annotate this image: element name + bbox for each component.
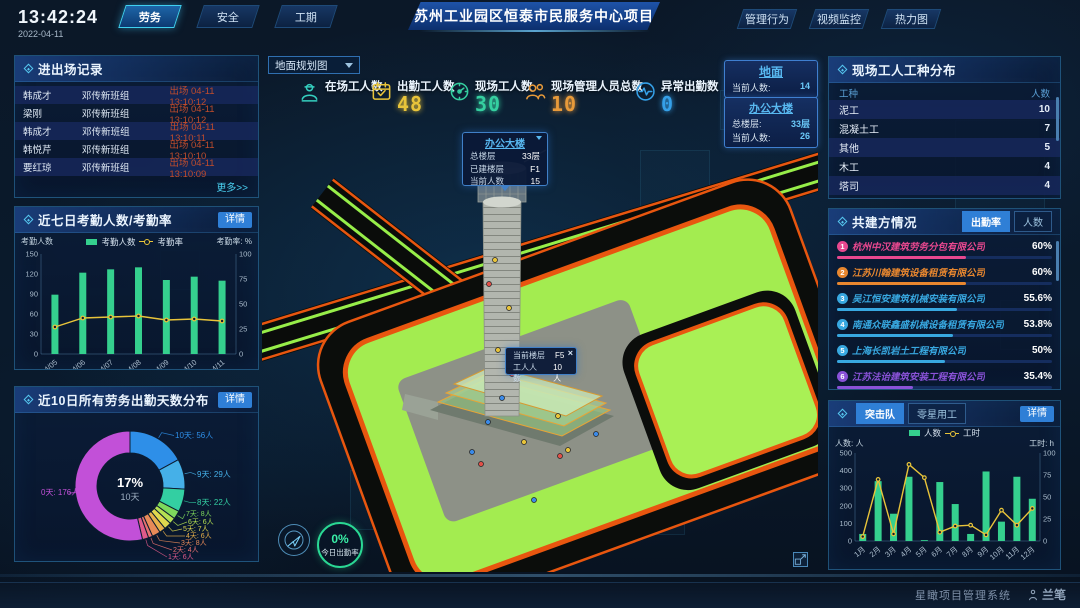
table-header-row: 工种 人数 [829, 85, 1060, 100]
nav-tab-热力图[interactable]: 热力图 [881, 9, 941, 29]
fullscreen-icon[interactable] [793, 552, 808, 567]
svg-text:04/05: 04/05 [39, 358, 59, 370]
panel-header: 近七日考勤人数/考勤率 详情 [15, 207, 258, 233]
nav-tab-劳务[interactable]: 劳务 [118, 5, 181, 28]
banner-glow [420, 30, 650, 32]
svg-text:2月: 2月 [868, 545, 883, 559]
worker-icon [298, 80, 321, 103]
chart-meta: 考勤人数 考勤人数 考勤率 考勤率: % [15, 235, 258, 248]
page-title: 苏州工业园区恒泰市民服务中心项目 [414, 6, 654, 26]
line-legend-swatch [139, 241, 153, 242]
svg-text:04/08: 04/08 [123, 358, 143, 370]
squad-panel: 突击队零星用工 详情 人数 工时 人数: 人 工时: h 01002003004… [828, 400, 1061, 570]
donut-label: 9天: 29人 [197, 469, 231, 480]
tower-card-title[interactable]: 办公大楼 [725, 100, 817, 116]
legend-label: 工时 [963, 427, 980, 439]
legend-label: 考勤人数 [101, 236, 135, 248]
clock: 13:42:24 2022-04-11 [18, 7, 98, 39]
nav-tab-安全[interactable]: 安全 [196, 5, 259, 28]
system-name: 星瞰项目管理系统 [915, 587, 1011, 603]
worker-type-row: 塔司4 [829, 176, 1060, 195]
distribution-panel: 近10日所有劳务出勤天数分布 详情 17% 10天 10天: 56人 9天: 2… [14, 386, 259, 562]
entry-exit-panel: 进出场记录 韩成才邓传新班组出场 04-11 13:10:12梁刚邓传新班组出场… [14, 55, 259, 198]
right-axis-unit: 工时: h [1029, 438, 1054, 449]
partners-tab-出勤率[interactable]: 出勤率 [962, 211, 1010, 232]
scrollbar[interactable] [1056, 97, 1059, 141]
svg-text:4月: 4月 [899, 545, 914, 559]
legend-label: 人数 [924, 427, 941, 439]
svg-text:1月: 1月 [852, 545, 867, 559]
svg-text:0: 0 [34, 350, 38, 359]
svg-text:100: 100 [1043, 449, 1056, 458]
panel-title: 近七日考勤人数/考勤率 [38, 210, 172, 229]
svg-text:04/06: 04/06 [67, 358, 87, 370]
nav-tab-管理行为[interactable]: 管理行为 [737, 9, 797, 29]
chart-legend: 人数 工时 [909, 427, 980, 439]
diamond-icon [838, 65, 848, 75]
svg-text:100: 100 [239, 250, 252, 259]
gauge-label: 今日出勤率 [321, 547, 359, 558]
panel-header: 进出场记录 [15, 56, 258, 82]
tooltip-row: 当前人数15 [463, 175, 547, 188]
tower-card-row: 当前人数:26 [725, 130, 817, 144]
svg-text:400: 400 [839, 466, 852, 475]
panel-header: 共建方情况 出勤率人数 [829, 209, 1060, 235]
svg-text:75: 75 [1043, 471, 1051, 480]
svg-text:50: 50 [239, 300, 247, 309]
floor-tooltip: × 当前楼层F5 工人人数10人 [505, 347, 577, 375]
donut-label: 1天: 6人 [168, 552, 194, 562]
svg-text:7月: 7月 [945, 545, 960, 559]
ground-card-row: 当前人数:14 [725, 80, 817, 94]
stat-calendar: 出勤工人数48 [370, 78, 455, 114]
diamond-icon [838, 409, 848, 419]
view-select-dropdown[interactable]: 地面规划图 [268, 56, 360, 74]
nav-left: 劳务安全工期 [122, 5, 334, 28]
footer: 星瞰项目管理系统 兰笔 [915, 586, 1066, 603]
donut-center-label: 10天 [120, 490, 139, 503]
people-icon [524, 80, 547, 103]
right-axis-unit: 考勤率: % [216, 236, 252, 247]
axis-units-row: 人数: 人 工时: h [829, 438, 1060, 448]
squad-tab-零星用工[interactable]: 零星用工 [908, 403, 966, 424]
tower-card: 办公大楼 总楼层:33层 当前人数:26 [724, 97, 818, 148]
line-legend-swatch [945, 433, 959, 434]
detail-button[interactable]: 详情 [1020, 406, 1054, 422]
donut-center-value: 17% [117, 475, 143, 490]
chart-legend-row: 人数 工时 [829, 428, 1060, 438]
squad-chart[interactable]: 010020030040050002550751001月2月3月4月5月6月7月… [829, 448, 1061, 568]
column-header: 工种 [839, 86, 858, 100]
meter-icon [448, 80, 471, 103]
column-header: 人数 [1031, 86, 1050, 100]
partners-list: 1杭州中汉建筑劳务分包有限公司60%2江苏川翰建筑设备租赁有限公司60%3吴江恒… [829, 235, 1060, 389]
donut-chart-area: 17% 10天 10天: 56人 9天: 29人 8天: 22人 7天: 8人 … [15, 413, 258, 561]
left-axis-unit: 考勤人数 [21, 236, 53, 247]
bar-legend-swatch [86, 239, 97, 245]
svg-text:90: 90 [30, 290, 38, 299]
svg-text:300: 300 [839, 484, 852, 493]
tooltip-row: 总楼层33层 [463, 150, 547, 163]
date: 2022-04-11 [18, 29, 98, 39]
svg-text:04/07: 04/07 [95, 358, 115, 370]
svg-text:3月: 3月 [883, 545, 898, 559]
worker-type-row: 泥工10 [829, 100, 1060, 119]
title-banner: 苏州工业园区恒泰市民服务中心项目 [408, 2, 660, 30]
nav-tab-视频监控[interactable]: 视频监控 [809, 9, 869, 29]
svg-text:04/10: 04/10 [178, 358, 198, 370]
svg-text:10月: 10月 [988, 545, 1006, 562]
svg-text:25: 25 [1043, 515, 1051, 524]
dashboard: 13:42:24 2022-04-11 劳务安全工期 苏州工业园区恒泰市民服务中… [0, 0, 1080, 608]
brand-mascot-icon [1027, 588, 1039, 602]
tower-tooltip: 办公大楼 总楼层33层 已建楼层F1 当前人数15 [462, 132, 548, 186]
close-icon[interactable]: × [568, 348, 573, 358]
partners-tabs: 出勤率人数 [958, 211, 1052, 232]
legend-label: 考勤率 [157, 236, 183, 248]
bar-legend-swatch [909, 430, 920, 436]
stat-value: 10 [551, 94, 643, 114]
nav-right: 管理行为视频监控热力图 [740, 9, 938, 29]
bottom-divider [0, 574, 1080, 577]
worker-types-list: 泥工10混凝土工7其他5木工4塔司4 [829, 100, 1060, 195]
worker-type-row: 木工4 [829, 157, 1060, 176]
chevron-down-icon [345, 63, 353, 68]
svg-text:9月: 9月 [976, 545, 991, 559]
detail-button[interactable]: 详情 [218, 212, 252, 228]
stat-people: 现场管理人员总数10 [524, 78, 643, 114]
svg-text:5月: 5月 [914, 545, 929, 559]
tower-card-row: 总楼层:33层 [725, 116, 817, 130]
entry-exit-row: 要红琼邓传新班组出场 04-11 13:10:09 [15, 158, 258, 176]
svg-text:30: 30 [30, 330, 38, 339]
today-attendance-gauge: 0% 今日出勤率 [317, 522, 363, 568]
nav-tab-工期[interactable]: 工期 [274, 5, 337, 28]
tooltip-row: 工人人数10人 [506, 362, 576, 385]
partner-item[interactable]: 3吴江恒安建筑机械安装有限公司55.6% [837, 291, 1052, 317]
tower-tooltip-title[interactable]: 办公大楼 [463, 135, 547, 150]
svg-text:100: 100 [839, 519, 852, 528]
svg-text:150: 150 [25, 250, 38, 259]
svg-text:75: 75 [239, 275, 247, 284]
brand-logo: 兰笔 [1027, 586, 1066, 603]
ground-card: 地面 当前人数:14 [724, 60, 818, 98]
diamond-icon [24, 395, 34, 405]
worker-type-row: 其他5 [829, 138, 1060, 157]
partners-panel: 共建方情况 出勤率人数 1杭州中汉建筑劳务分包有限公司60%2江苏川翰建筑设备租… [828, 208, 1061, 390]
entry-exit-list: 韩成才邓传新班组出场 04-11 13:10:12梁刚邓传新班组出场 04-11… [15, 82, 258, 176]
brand-name: 兰笔 [1042, 586, 1066, 603]
svg-text:120: 120 [25, 270, 38, 279]
stat-meter: 现场工人数30 [448, 78, 533, 114]
calendar-icon [370, 80, 393, 103]
svg-text:0: 0 [848, 537, 852, 546]
panel-header: 现场工人工种分布 [829, 57, 1060, 83]
donut-label: 0天: 176人 [41, 487, 79, 498]
svg-text:04/09: 04/09 [150, 358, 170, 370]
more-link[interactable]: 更多>> [216, 179, 248, 194]
diamond-icon [838, 217, 848, 227]
ground-card-title[interactable]: 地面 [725, 63, 817, 80]
panel-title: 进出场记录 [38, 59, 103, 78]
scrollbar[interactable] [1056, 241, 1059, 281]
panel-title: 现场工人工种分布 [852, 60, 956, 79]
stat-value: 0 [661, 94, 719, 114]
svg-text:0: 0 [1043, 537, 1047, 546]
stat-pulse: 异常出勤数0 [634, 78, 719, 114]
left-axis-unit: 人数: 人 [835, 438, 863, 449]
squad-tabs: 突击队零星用工 [852, 403, 966, 424]
compass-icon[interactable] [278, 524, 310, 556]
chart-legend: 考勤人数 考勤率 [86, 236, 183, 248]
tooltip-row: 当前楼层F5 [506, 350, 576, 362]
weekly-attendance-panel: 近七日考勤人数/考勤率 详情 考勤人数 考勤人数 考勤率 考勤率: % 0306… [14, 206, 259, 370]
svg-text:500: 500 [839, 449, 852, 458]
stat-value: 48 [397, 94, 455, 114]
panel-header: 突击队零星用工 详情 [829, 401, 1060, 427]
weekly-attendance-chart[interactable]: 0306090120150025507510004/0504/0604/0704… [15, 248, 259, 370]
pulse-icon [634, 80, 657, 103]
panel-title: 共建方情况 [852, 212, 917, 231]
donut-label: 8天: 22人 [197, 497, 231, 508]
svg-text:60: 60 [30, 310, 38, 319]
time: 13:42:24 [18, 7, 98, 28]
partner-item[interactable]: 2江苏川翰建筑设备租赁有限公司60% [837, 265, 1052, 291]
worker-type-row: 混凝土工7 [829, 119, 1060, 138]
diamond-icon [24, 64, 34, 74]
svg-text:6月: 6月 [929, 545, 944, 559]
partner-item[interactable]: 1杭州中汉建筑劳务分包有限公司60% [837, 239, 1052, 265]
panel-title: 近10日所有劳务出勤天数分布 [38, 390, 209, 409]
svg-text:200: 200 [839, 501, 852, 510]
donut-label: 10天: 56人 [175, 430, 213, 441]
diamond-icon [24, 215, 34, 225]
partner-item[interactable]: 4南通众联鑫盛机械设备租赁有限公司53.8% [837, 317, 1052, 343]
svg-text:25: 25 [239, 325, 247, 334]
partner-item[interactable]: 6江苏法诒建筑安装工程有限公司35.4% [837, 369, 1052, 389]
gauge-value: 0% [331, 532, 348, 546]
panel-header: 近10日所有劳务出勤天数分布 详情 [15, 387, 258, 413]
partners-tab-人数[interactable]: 人数 [1014, 211, 1052, 232]
view-select-value: 地面规划图 [275, 58, 328, 73]
squad-tab-突击队[interactable]: 突击队 [856, 403, 904, 424]
worker-types-panel: 现场工人工种分布 工种 人数 泥工10混凝土工7其他5木工4塔司4 [828, 56, 1061, 199]
svg-text:04/11: 04/11 [207, 358, 227, 370]
tooltip-row: 已建楼层F1 [463, 163, 547, 176]
svg-text:12月: 12月 [1019, 545, 1037, 562]
chevron-down-icon[interactable] [536, 136, 542, 140]
svg-text:8月: 8月 [960, 545, 975, 559]
svg-text:11月: 11月 [1004, 545, 1022, 562]
svg-text:0: 0 [239, 350, 243, 359]
svg-text:50: 50 [1043, 493, 1051, 502]
partner-item[interactable]: 5上海长凯岩土工程有限公司50% [837, 343, 1052, 369]
detail-button[interactable]: 详情 [218, 392, 252, 408]
